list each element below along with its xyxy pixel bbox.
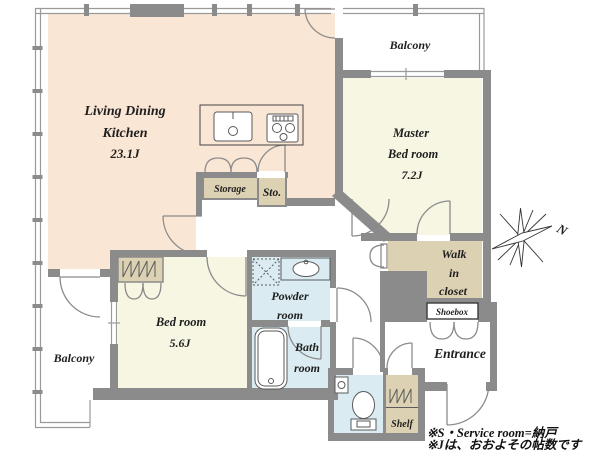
wic-bifold-door — [370, 244, 387, 268]
entrance-label: Entrance — [433, 346, 486, 361]
bathtub-icon — [255, 328, 287, 389]
floor-plan-canvas: N Living Dining Kitchen 23.1J Balcony Ma… — [0, 0, 600, 450]
shelf-label: Shelf — [391, 419, 414, 430]
entrance-front-door — [447, 383, 489, 425]
shoebox-label: Shoebox — [436, 307, 469, 317]
bedroom-size-label: 5.6J — [170, 336, 192, 350]
master-size-label: 7.2J — [402, 168, 424, 182]
master-label-line1: Master — [392, 126, 429, 140]
powder-label-line1: Powder — [271, 289, 309, 303]
bath-label-line2: room — [294, 361, 320, 375]
compass-icon — [492, 208, 552, 267]
ldk-size-label: 23.1J — [109, 146, 140, 161]
balcony-top-label: Balcony — [389, 38, 431, 52]
footnote-line2: ※Jは、おおよその帖数です — [427, 438, 584, 450]
wic-label-line2: in — [449, 266, 459, 280]
shelf-door — [387, 343, 412, 368]
floor-plan: N Living Dining Kitchen 23.1J Balcony Ma… — [0, 0, 600, 450]
sto-label: Sto. — [263, 187, 281, 199]
powder-label-line2: room — [277, 308, 303, 322]
stove-icon — [267, 114, 298, 142]
compass-north-label: N — [554, 220, 571, 238]
toilet-door — [353, 338, 383, 368]
balcony-bottom-door — [60, 277, 100, 317]
bedroom-label: Bed room — [155, 315, 207, 329]
sink-icon — [214, 112, 252, 141]
shoebox-bifold-doors — [430, 322, 478, 339]
bedroom-closet-floor — [118, 257, 163, 282]
master-label-line2: Bed room — [387, 147, 439, 161]
wic-label-line1: Walk — [441, 247, 466, 261]
storage-label: Storage — [214, 184, 246, 195]
ldk-label-line1: Living Dining — [83, 104, 165, 119]
compass: N — [492, 208, 571, 267]
wic-label-line3: closet — [439, 284, 468, 298]
powder-room-door — [337, 288, 371, 322]
balcony-bottom-label: Balcony — [53, 351, 95, 365]
footnotes: ※S・Service room=納戸 ※Jは、おおよその帖数です — [427, 426, 584, 450]
ldk-label-line2: Kitchen — [101, 126, 147, 141]
bath-label-line1: Bath — [294, 340, 319, 354]
